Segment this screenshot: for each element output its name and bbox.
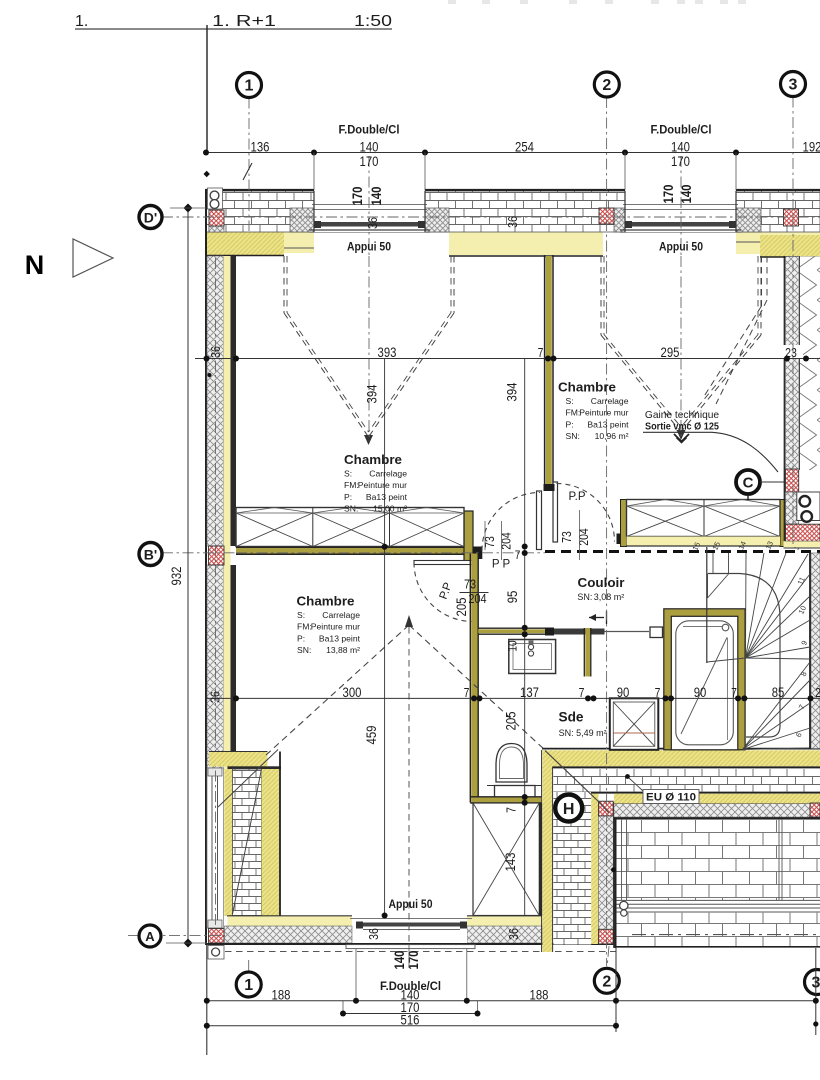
svg-text:Chambre: Chambre	[558, 380, 616, 395]
svg-text:7: 7	[538, 346, 544, 360]
svg-text:P:: P:	[566, 419, 574, 429]
svg-text:FM:: FM:	[566, 408, 581, 418]
svg-text:7: 7	[655, 686, 661, 700]
svg-text:137: 137	[520, 685, 539, 700]
svg-text:90: 90	[694, 685, 707, 700]
svg-text:SN:: SN:	[577, 592, 592, 602]
svg-text:459: 459	[364, 726, 379, 745]
svg-text:36: 36	[507, 928, 521, 940]
svg-text:3: 3	[789, 77, 798, 94]
svg-text:36: 36	[209, 346, 223, 358]
svg-text:140: 140	[679, 185, 694, 204]
svg-text:Ba13 peint: Ba13 peint	[319, 633, 361, 643]
svg-text:192: 192	[803, 139, 820, 154]
svg-text:1:50: 1:50	[354, 13, 392, 30]
svg-text:295: 295	[661, 345, 680, 360]
svg-text:140: 140	[392, 951, 407, 970]
svg-text:SN:: SN:	[344, 504, 358, 514]
svg-text:2: 2	[815, 686, 820, 700]
svg-text:73: 73	[560, 531, 574, 543]
svg-text:S:: S:	[297, 610, 305, 620]
svg-text:P:: P:	[297, 633, 305, 643]
svg-text:143: 143	[503, 853, 518, 872]
svg-text:140: 140	[671, 139, 690, 154]
svg-text:36: 36	[366, 217, 380, 229]
svg-text:1. R+1: 1. R+1	[212, 13, 276, 30]
svg-text:P:: P:	[344, 492, 352, 502]
svg-text:73: 73	[464, 577, 476, 592]
svg-text:1: 1	[244, 977, 253, 994]
svg-text:Ba13 peint: Ba13 peint	[366, 492, 408, 502]
svg-text:10,96 m²: 10,96 m²	[595, 431, 629, 441]
svg-text:Peinture mur: Peinture mur	[311, 622, 360, 632]
svg-text:Ba13 peint: Ba13 peint	[587, 419, 629, 429]
svg-text:170: 170	[350, 187, 365, 206]
svg-text:15,00 m²: 15,00 m²	[373, 504, 407, 514]
svg-text:FM:: FM:	[344, 480, 359, 490]
svg-text:1: 1	[245, 78, 254, 95]
svg-text:170: 170	[360, 154, 379, 169]
svg-text:S:: S:	[344, 469, 352, 479]
svg-text:Carrelage: Carrelage	[369, 469, 407, 479]
svg-text:F.Double/Cl: F.Double/Cl	[339, 122, 400, 136]
svg-text:Carrelage: Carrelage	[322, 610, 360, 620]
svg-text:Appui 50: Appui 50	[347, 242, 391, 254]
svg-text:7: 7	[515, 548, 521, 562]
svg-text:7: 7	[464, 686, 470, 700]
svg-text:90: 90	[617, 685, 630, 700]
svg-text:A: A	[145, 929, 155, 944]
svg-text:C: C	[743, 475, 754, 492]
svg-text:S:: S:	[566, 396, 574, 406]
svg-text:7: 7	[731, 686, 737, 700]
svg-text:3,08 m²: 3,08 m²	[594, 592, 625, 602]
svg-text:85: 85	[772, 685, 785, 700]
svg-text:Gaine technique: Gaine technique	[645, 410, 720, 421]
svg-text:394: 394	[365, 384, 380, 403]
svg-text:95: 95	[505, 591, 520, 604]
svg-text:Appui 50: Appui 50	[389, 899, 433, 911]
svg-text:10: 10	[506, 640, 520, 651]
svg-text:FM:: FM:	[297, 622, 312, 632]
svg-text:205: 205	[504, 712, 519, 731]
svg-text:SN:: SN:	[566, 431, 580, 441]
svg-text:188: 188	[530, 988, 549, 1003]
svg-text:Sde: Sde	[559, 710, 584, 725]
svg-text:36: 36	[367, 928, 381, 940]
svg-text:516: 516	[401, 1013, 420, 1028]
svg-text:300: 300	[343, 685, 362, 700]
svg-text:SN:: SN:	[297, 645, 311, 655]
svg-text:Sortie vmc Ø 125: Sortie vmc Ø 125	[645, 422, 719, 433]
svg-text:170: 170	[406, 951, 421, 970]
svg-text:Peinture mur: Peinture mur	[358, 480, 407, 490]
svg-text:140: 140	[360, 139, 379, 154]
svg-text:170: 170	[671, 154, 690, 169]
svg-text:1.: 1.	[75, 13, 88, 30]
svg-text:7: 7	[505, 807, 519, 813]
svg-text:36: 36	[506, 216, 520, 228]
svg-text:140: 140	[369, 187, 384, 206]
svg-text:N: N	[25, 250, 45, 280]
svg-text:394: 394	[505, 382, 520, 401]
svg-text:F.Double/Cl: F.Double/Cl	[651, 122, 712, 136]
svg-text:EU Ø 110: EU Ø 110	[646, 792, 696, 804]
svg-text:Appui 50: Appui 50	[659, 242, 703, 254]
svg-text:Peinture mur: Peinture mur	[579, 408, 628, 418]
svg-text:Carrelage: Carrelage	[591, 396, 629, 406]
svg-text:Chambre: Chambre	[344, 452, 402, 467]
svg-text:188: 188	[272, 988, 291, 1003]
svg-text:932: 932	[169, 567, 184, 586]
svg-text:H: H	[563, 801, 575, 818]
svg-text:Couloir: Couloir	[578, 575, 625, 590]
svg-text:254: 254	[515, 139, 534, 154]
svg-text:D': D'	[144, 210, 157, 226]
svg-text:205: 205	[454, 598, 469, 617]
svg-text:P P: P P	[492, 559, 511, 571]
svg-text:13,88 m²: 13,88 m²	[326, 645, 360, 655]
svg-text:136: 136	[251, 139, 270, 154]
svg-text:204: 204	[468, 591, 486, 606]
svg-text:Chambre: Chambre	[297, 594, 355, 609]
svg-text:2: 2	[602, 973, 611, 990]
svg-text:SN: 5,49 m²: SN: 5,49 m²	[559, 728, 607, 738]
svg-text:P.P: P.P	[568, 491, 585, 503]
svg-text:7: 7	[579, 686, 585, 700]
svg-text:36: 36	[209, 691, 223, 703]
svg-text:393: 393	[378, 345, 397, 360]
svg-text:B': B'	[144, 547, 157, 563]
svg-text:170: 170	[661, 185, 676, 204]
svg-text:2: 2	[602, 77, 611, 94]
svg-text:F.Double/Cl: F.Double/Cl	[380, 979, 441, 993]
